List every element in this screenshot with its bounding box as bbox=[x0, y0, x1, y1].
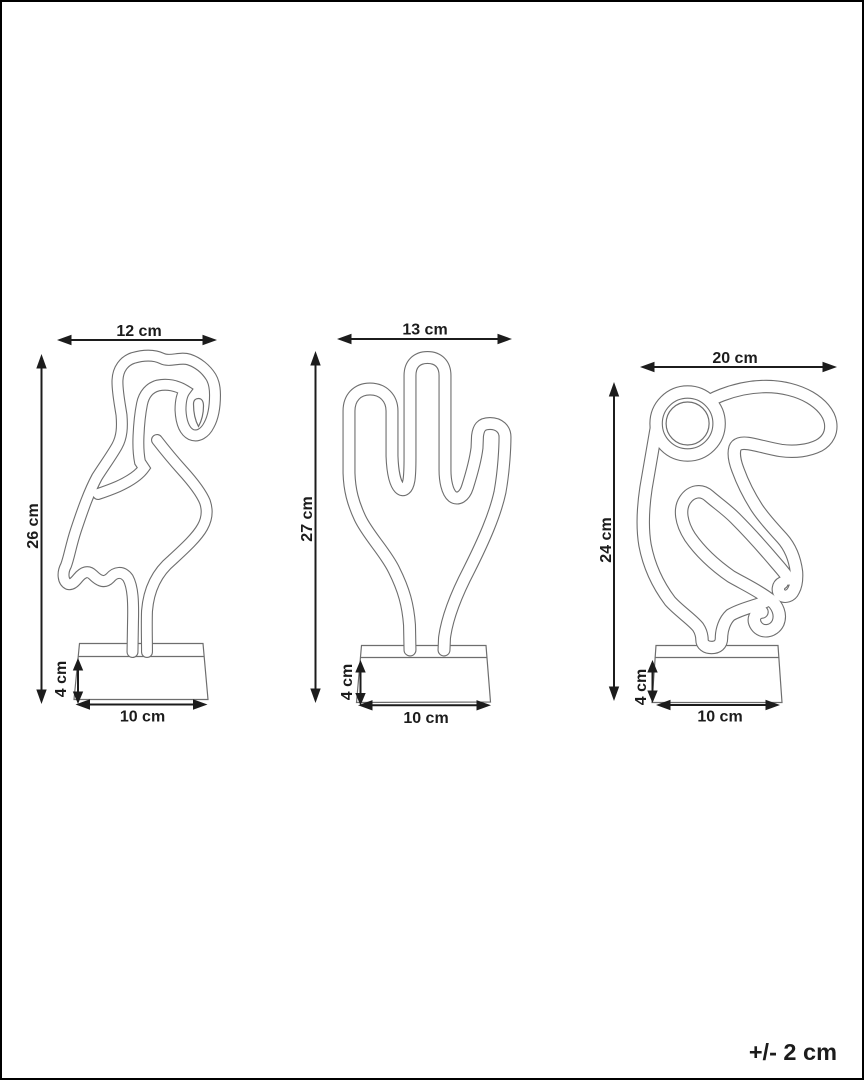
svg-text:+/- 2 cm: +/- 2 cm bbox=[749, 1039, 837, 1065]
svg-text:24 cm: 24 cm bbox=[598, 517, 615, 562]
svg-text:4 cm: 4 cm bbox=[633, 669, 650, 705]
svg-text:12 cm: 12 cm bbox=[116, 323, 161, 340]
svg-text:26 cm: 26 cm bbox=[25, 503, 42, 548]
svg-text:10 cm: 10 cm bbox=[403, 710, 448, 727]
svg-text:4 cm: 4 cm bbox=[339, 664, 356, 700]
svg-text:20 cm: 20 cm bbox=[712, 350, 757, 367]
svg-text:4 cm: 4 cm bbox=[53, 661, 70, 697]
svg-text:10 cm: 10 cm bbox=[120, 709, 165, 726]
svg-text:27 cm: 27 cm bbox=[299, 496, 316, 541]
svg-text:13 cm: 13 cm bbox=[402, 322, 447, 339]
svg-text:10 cm: 10 cm bbox=[697, 709, 742, 726]
